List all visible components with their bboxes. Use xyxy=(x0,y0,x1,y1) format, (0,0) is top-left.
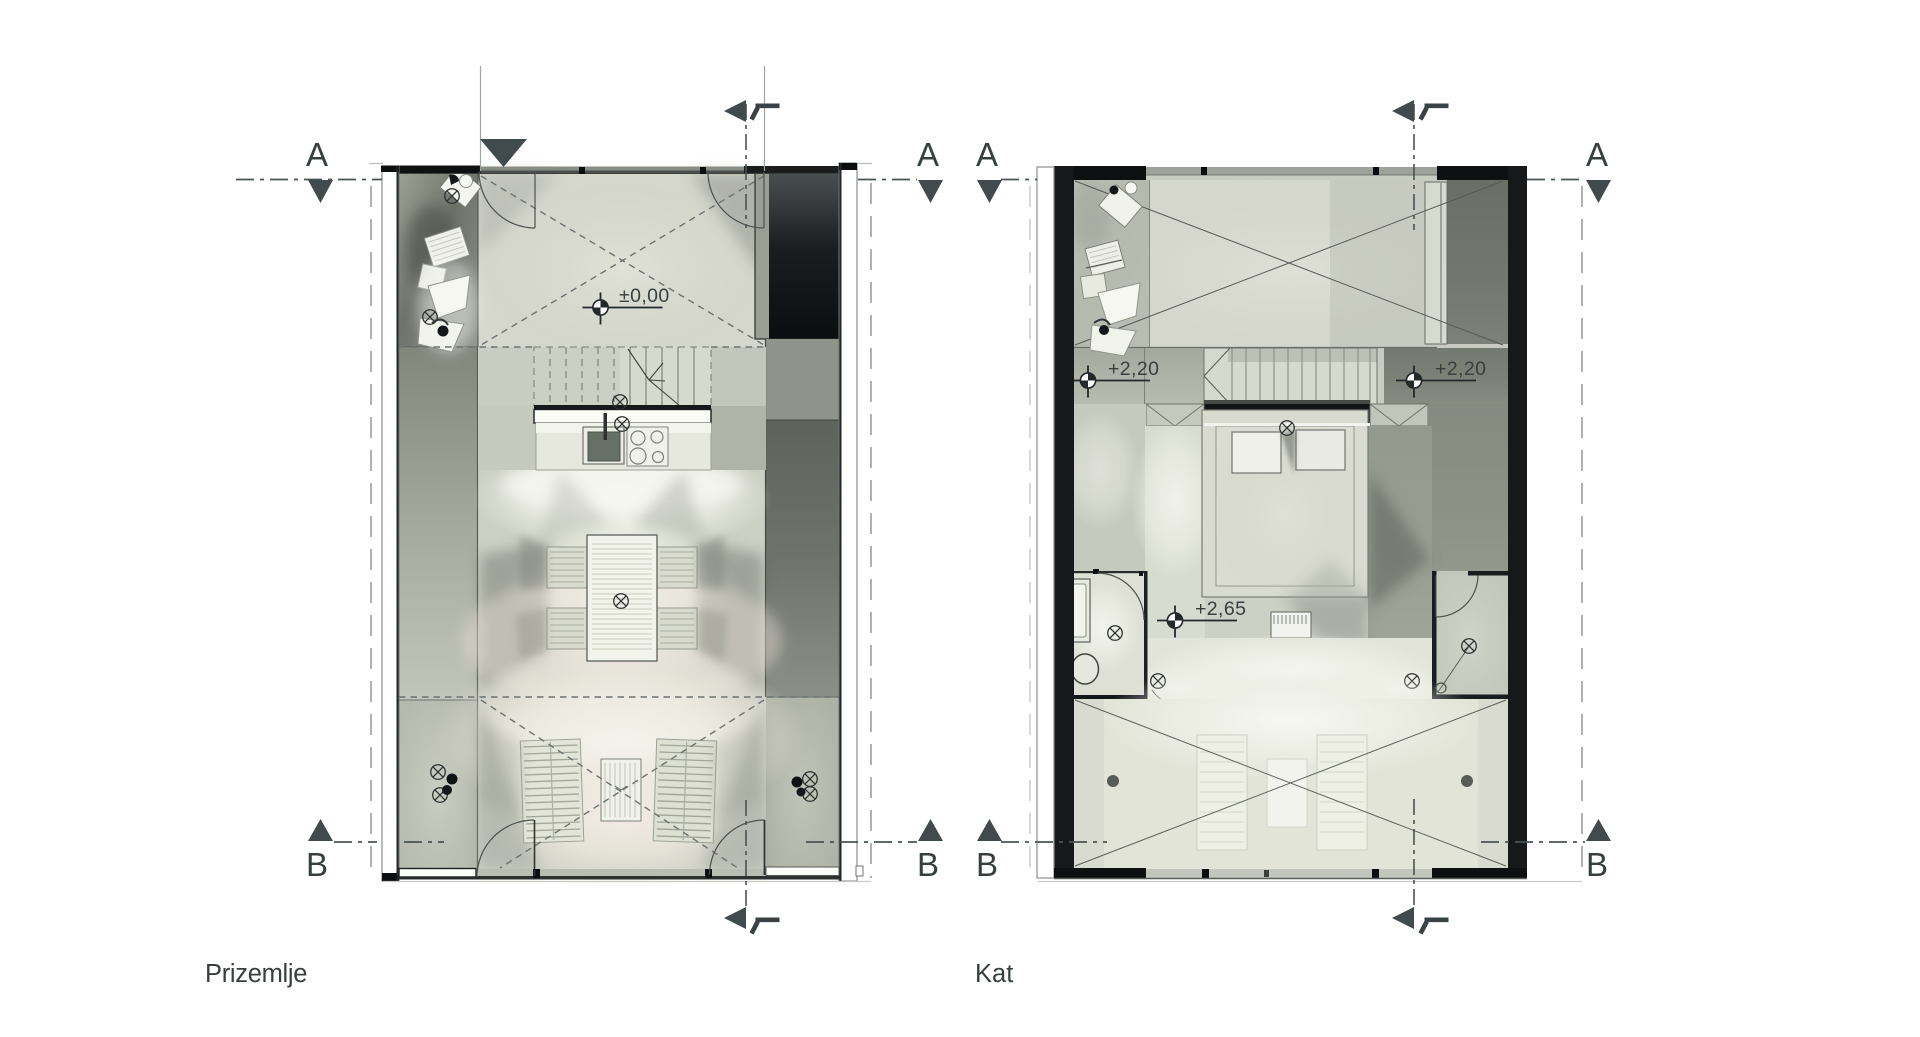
svg-text:+2,65: +2,65 xyxy=(1195,598,1246,620)
svg-text:A: A xyxy=(306,136,328,173)
svg-text:Kat: Kat xyxy=(975,960,1013,988)
svg-text:A: A xyxy=(1586,136,1608,173)
svg-text:B: B xyxy=(1586,846,1608,883)
svg-text:A: A xyxy=(976,136,998,173)
svg-text:A: A xyxy=(917,136,939,173)
svg-text:B: B xyxy=(306,846,328,883)
svg-text:B: B xyxy=(976,846,998,883)
svg-text:±0,00: ±0,00 xyxy=(619,285,670,307)
svg-text:B: B xyxy=(917,846,939,883)
svg-text:+2,20: +2,20 xyxy=(1108,358,1159,380)
svg-text:+2,20: +2,20 xyxy=(1435,358,1486,380)
svg-text:Prizemlje: Prizemlje xyxy=(205,960,307,988)
